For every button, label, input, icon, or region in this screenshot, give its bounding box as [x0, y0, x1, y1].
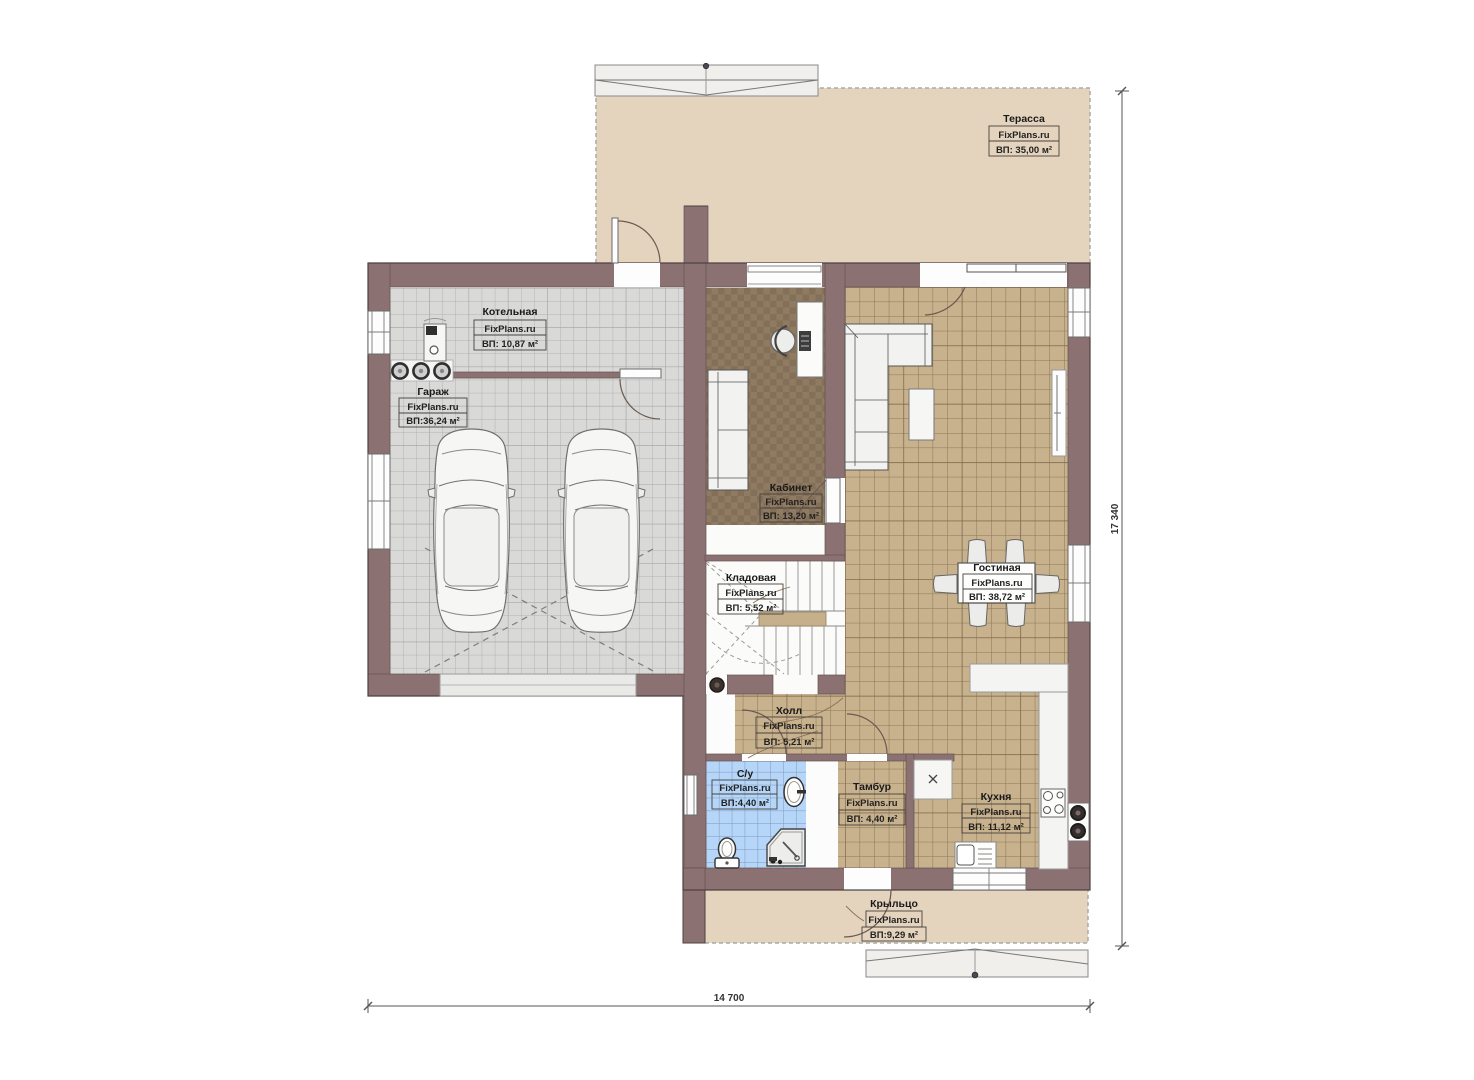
svg-text:Терасса: Терасса	[1003, 113, 1045, 125]
svg-text:FixPlans.ru: FixPlans.ru	[868, 915, 919, 926]
svg-text:FixPlans.ru: FixPlans.ru	[407, 402, 458, 413]
svg-text:FixPlans.ru: FixPlans.ru	[970, 807, 1021, 818]
svg-text:FixPlans.ru: FixPlans.ru	[763, 721, 814, 732]
svg-text:FixPlans.ru: FixPlans.ru	[484, 324, 535, 335]
svg-text:FixPlans.ru: FixPlans.ru	[998, 130, 1049, 141]
svg-text:Кухня: Кухня	[981, 791, 1012, 803]
svg-text:ВП: 5,52 м²: ВП: 5,52 м²	[726, 603, 777, 614]
svg-text:ВП:36,24 м²: ВП:36,24 м²	[406, 416, 459, 427]
svg-text:FixPlans.ru: FixPlans.ru	[846, 798, 897, 809]
svg-text:Тамбур: Тамбур	[853, 781, 891, 793]
svg-text:FixPlans.ru: FixPlans.ru	[971, 578, 1022, 589]
svg-text:Кабинет: Кабинет	[770, 482, 813, 494]
svg-text:ВП: 11,12 м²: ВП: 11,12 м²	[968, 822, 1024, 833]
svg-text:Гостиная: Гостиная	[973, 562, 1020, 574]
svg-text:FixPlans.ru: FixPlans.ru	[765, 497, 816, 508]
svg-text:ВП: 38,72 м²: ВП: 38,72 м²	[969, 592, 1025, 603]
svg-text:Котельная: Котельная	[483, 306, 538, 318]
svg-text:FixPlans.ru: FixPlans.ru	[725, 588, 776, 599]
svg-text:ВП: 13,20 м²: ВП: 13,20 м²	[763, 511, 819, 522]
svg-text:С/у: С/у	[737, 768, 754, 780]
svg-text:17 340: 17 340	[1110, 503, 1121, 534]
svg-text:ВП:9,29 м²: ВП:9,29 м²	[870, 930, 918, 941]
svg-text:Холл: Холл	[776, 705, 802, 717]
svg-text:Крыльцо: Крыльцо	[870, 898, 918, 910]
svg-text:ВП: 10,87 м²: ВП: 10,87 м²	[482, 339, 538, 350]
svg-text:ВП: 35,00 м²: ВП: 35,00 м²	[996, 145, 1052, 156]
svg-text:14 700: 14 700	[714, 993, 745, 1004]
svg-text:ВП: 4,40 м²: ВП: 4,40 м²	[847, 814, 898, 825]
svg-text:Гараж: Гараж	[417, 386, 449, 398]
svg-text:ВП:4,40 м²: ВП:4,40 м²	[721, 798, 769, 809]
svg-text:Кладовая: Кладовая	[726, 572, 776, 584]
svg-text:FixPlans.ru: FixPlans.ru	[719, 783, 770, 794]
svg-text:ВП: 5,21 м²: ВП: 5,21 м²	[764, 737, 815, 748]
